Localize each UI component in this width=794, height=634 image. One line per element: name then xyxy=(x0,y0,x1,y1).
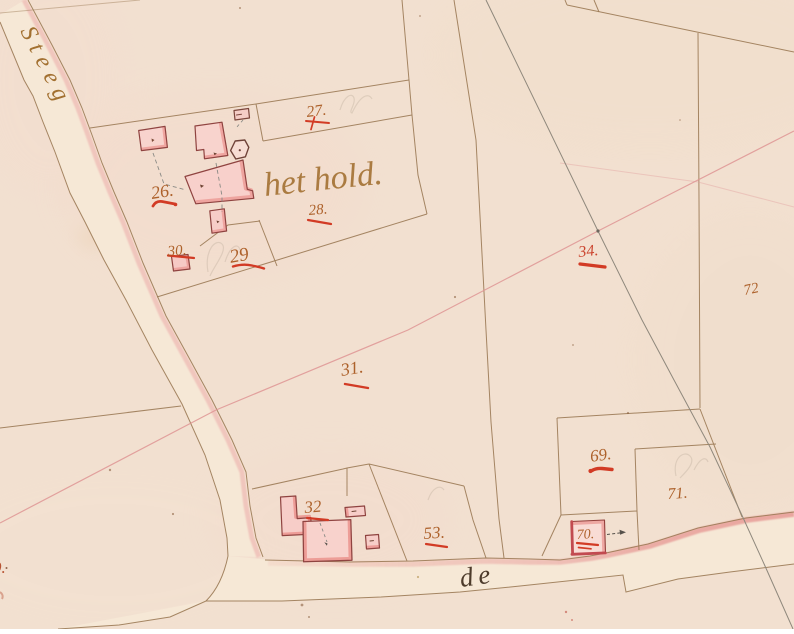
svg-text:9.: 9. xyxy=(0,558,6,577)
svg-text:53.: 53. xyxy=(423,523,446,543)
svg-text:27.: 27. xyxy=(305,102,327,121)
svg-text:30.: 30. xyxy=(166,242,187,260)
svg-text:34.: 34. xyxy=(577,242,600,261)
svg-text:70.: 70. xyxy=(576,527,594,543)
svg-text:de: de xyxy=(458,558,497,593)
svg-text:31.: 31. xyxy=(338,356,365,380)
svg-text:28.: 28. xyxy=(308,201,328,219)
svg-text:32: 32 xyxy=(303,497,323,518)
svg-text:69.: 69. xyxy=(589,444,613,466)
svg-text:26.: 26. xyxy=(149,180,174,203)
svg-text:71.: 71. xyxy=(667,485,688,503)
